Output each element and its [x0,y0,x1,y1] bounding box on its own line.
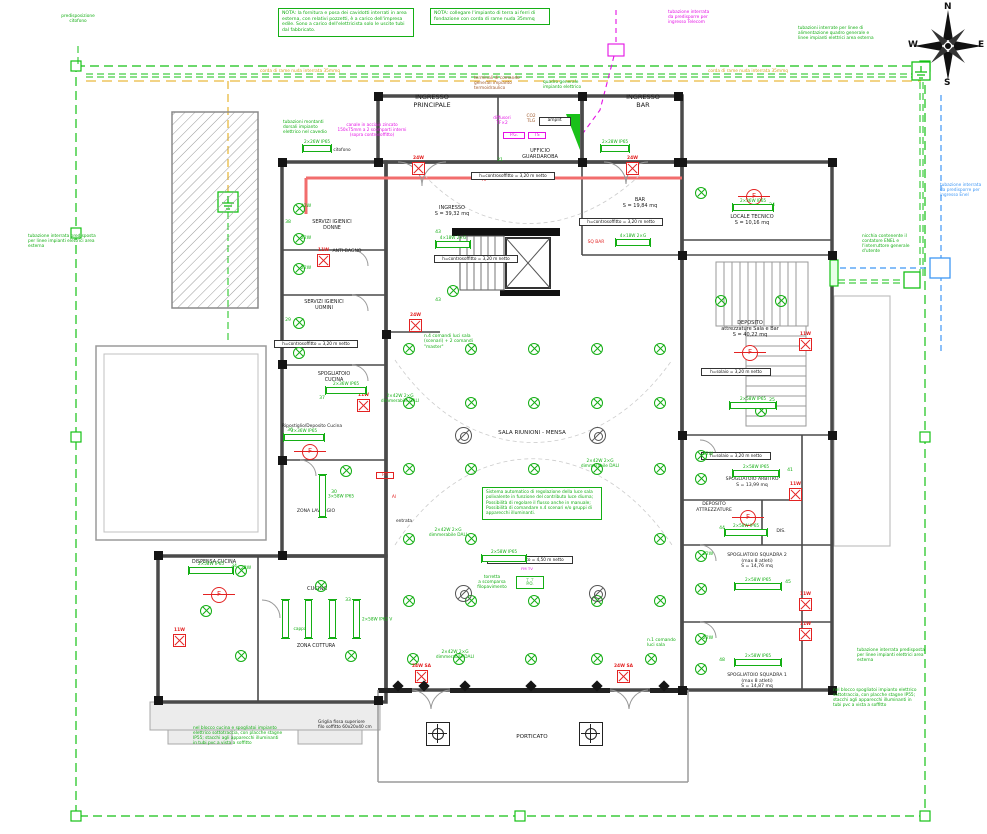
h-ingresso: h=controsoffitto = 3,20 m netto [434,255,518,263]
ceiling-light-icon [340,465,352,477]
note-nicchia: nicchia contenente il contatore ENEL e l… [862,234,918,255]
room-spogliatoio-squadra-1: SPOGLIATOIO SQUADRA 1 (max 8 atleti) S =… [715,673,799,690]
emergency-light-icon: 11W [357,399,370,412]
room-ufficio-guardaroba: UFFICIO GUARDAROBA [510,148,570,160]
fluorescent-lamp-icon: 2×36W IP65 [733,204,773,211]
ceiling-light-icon [235,650,247,662]
emergency-light-label: 11W [318,248,329,253]
emergency-light-label: 11W [790,482,801,487]
label-ts: TS [528,132,546,139]
fluorescent-lamp-icon: 3×58W IP65 [319,475,326,517]
compass-s: S [944,78,950,88]
room-porticato: PORTICATO [502,734,562,741]
label-torretta-box: ⊤ ⊤ P.O. [516,576,544,589]
note-quadro: quadro generale impianto elettrico [543,80,597,90]
ceiling-light-icon [654,533,666,545]
ceiling-light-icon [775,295,787,307]
fluorescent-lamp-icon: 2×58W IP65 [725,529,767,536]
note-griglia: Griglia fissa superiore filo soffitto 60… [318,720,382,730]
label-amplif: amplif. [539,117,571,126]
west-walkway [96,346,266,540]
note-spogliatoi: nel blocco spogliatoi impianto elettrico… [833,688,943,709]
ceiling-light-icon [715,295,727,307]
lamp-label: 2×58W IP65 [740,396,766,401]
h-guardaroba: h=controsoffitto = 3,20 m netto [471,172,555,180]
ceiling-light-icon [465,463,477,475]
ceiling-light-icon [345,650,357,662]
room-locale-tecnico: LOCALE TECNICO S = 10,16 mq [717,214,787,226]
emergency-light-icon: 11W [173,634,186,647]
fluorescent-lamp-icon: 4×18W 2×G [616,239,650,246]
label-corda-left: corda di rame nuda interrata 35mmq [235,69,365,74]
label-fm: FM [376,472,394,479]
room-servizi-uomini: SERVIZI IGIENICI UOMINI [294,300,354,312]
label-dali-3: 2×42W 2×G dimmerabile DALI [373,394,427,404]
emergency-light-icon: 24W SA [617,670,630,683]
note-telecom: tubazione interrata da predisporre per i… [668,10,732,25]
lamp-label: 2×36W IP65 [291,428,317,433]
extractor-fan-icon: F [211,587,227,603]
lamp-label: 2×58W IP65 [733,523,759,528]
label-al-1: Al [388,495,400,500]
fluorescent-lamp-icon: 2×58W IP65 [189,567,233,574]
ceiling-light-icon [403,463,415,475]
floor-box-cross [581,733,600,734]
emergency-light-icon: 11W [799,338,812,351]
lamp-label: 2×26W IP65 [304,139,330,144]
fluorescent-lamp-icon: 2×58W IP65 [735,583,781,590]
room-ingresso-principale: INGRESSO PRINCIPALE [392,94,472,110]
ceiling-light-icon [654,397,666,409]
note-box-regolazione-luce: Sistema automatico di regolazione della … [482,487,602,520]
note-comando-1: n.1 comando luci sala [647,638,691,649]
downlight-icon [455,585,472,602]
room-ingresso-bar: INGRESSO BAR [613,94,673,110]
ceiling-light-icon [695,550,707,562]
emergency-light-label: 24W [627,156,638,161]
ceiling-light-icon [453,653,465,665]
ceiling-light-icon [528,463,540,475]
room-zona-lavaggio: ZONA LAVAGGIO [286,509,346,515]
room-deposito-attrezzature: DEPOSITO ATTREZZATURE [684,502,744,513]
emergency-light-label: 11W [174,628,185,633]
ceiling-light-icon [654,463,666,475]
ceiling-light-icon [403,595,415,607]
fluorescent-lamp-icon: 2×58W IP65 [735,659,781,666]
ceiling-light-icon [695,187,707,199]
lamp-label: 3×58W IP65 [328,494,354,499]
emergency-light-label: 11W [800,622,811,627]
note-comandi-sala: n.4 comandi luci sala (scenari) + 2 coma… [424,334,490,350]
lamp-label: 2×58W IP65 [745,653,771,658]
emergency-light-icon: 24W [412,162,425,175]
ceiling-light-icon [591,343,603,355]
ceiling-light-icon [528,397,540,409]
compass-e: E [978,40,984,50]
downlight-icon [589,585,606,602]
num-43b: 43 [432,298,444,304]
ceiling-light-icon [235,565,247,577]
num-48: 48 [716,658,728,664]
emergency-light-label: 11W [800,332,811,337]
note-enel: tubazione interrata da predisporre per i… [940,183,986,198]
lamp-label: 2×58W IP65 [491,549,517,554]
emergency-light-icon: 24W [409,319,422,332]
floor-box-icon [579,722,603,746]
label-pg: P.G. [503,132,525,139]
room-spogliatoio-arbitro: SPOGLIATOIO ARBITRO S = 13,99 mq [712,477,792,488]
fluorescent-lamp-icon: 2×36W IP65 [326,387,366,394]
extractor-fan-icon: F [742,345,758,361]
note-tubazione-bottom-right: tubazione interrata predisposta per line… [857,648,943,663]
note-predisposizione-citofono: predisposizione citofono [52,14,104,24]
num-41: 41 [784,468,796,474]
fluorescent-lamp-icon: 2×26W IP65 [303,145,331,152]
emergency-light-label: 24W [413,156,424,161]
num-38: 38 [282,220,294,226]
ceiling-light-icon [403,533,415,545]
hatched-canopy [172,112,258,308]
ceiling-light-icon [200,605,212,617]
enel-box [930,258,950,278]
ceiling-light-icon [293,203,305,215]
lamp-label: 4×18W 2×G [620,233,646,238]
fluorescent-lamp-icon: 2×36W IP65 [284,434,324,441]
emergency-light-icon: 11W [799,628,812,641]
note-canale: canale in acciaio zincato 150x75mm a 2 s… [320,122,424,137]
ceiling-light-icon [654,343,666,355]
num-45: 45 [782,580,794,586]
downlight-icon [589,427,606,444]
ceiling-light-icon [293,233,305,245]
label-co2-tlg: CO2 TLG [521,114,541,124]
exterior-walls [158,96,832,702]
emergency-light-label: 24W SA [412,664,431,669]
num-21: 21 [494,158,506,164]
ceiling-light-icon [645,653,657,665]
ceiling-light-icon [293,317,305,329]
ceiling-light-icon [695,450,707,462]
lamp-label: 2×36W IP65 [333,381,359,386]
ceiling-light-icon [525,653,537,665]
fluorescent-lamp-icon: 2×58W IP65 [730,402,776,409]
west-walkway-inner [104,354,258,532]
room-spogliatoio-squadra-2: SPOGLIATOIO SQUADRA 2 (max 8 atleti) S =… [715,553,799,570]
floor-plan-canvas: NOTA: la fornitura e posa dei cavidotti … [0,0,987,834]
compass-n: N [944,2,952,12]
note-torretta: torretta a scomparsa filopavimento [470,575,514,590]
floor-box-icon [426,722,450,746]
fluorescent-lamp-icon: 2×58W IP65 [733,470,779,477]
room-deposito-sala-bar: DEPOSITO attrezzature Sala e Bar S = 40,… [710,320,790,338]
ceiling-light-icon [528,595,540,607]
room-zona-cottura: ZONA COTTURA [286,644,346,650]
room-servizi-donne: SERVIZI IGIENICI DONNE [302,220,362,232]
num-37: 37 [316,396,328,402]
emergency-light-label: 24W [410,313,421,318]
room-sala-riunioni: SALA RIUNIONI - MENSA [477,430,587,437]
label-corda-right: corda di rame nuda interrata 35mmq [683,69,813,74]
compass-w: W [908,40,918,50]
fluorescent-lamp-icon: 2×28W IP65 [601,145,629,152]
note-box-terra: NOTA: collegare l'impianto di terra ai f… [430,8,550,25]
ceiling-light-icon [654,595,666,607]
nicchia-contatore [830,260,838,286]
note-terminali: terminali di comando generali impianto t… [474,76,534,91]
note-alimentazione: tubazioni interrate per linee di aliment… [798,26,904,41]
ceiling-light-icon [528,343,540,355]
room-ingresso: INGRESSO S = 39,32 mq [422,205,482,217]
fluorescent-lamp-icon: 4×18W 2×G [436,241,470,248]
fluorescent-lamp-icon [329,600,336,638]
note-tubazione-left: tubazione interrata predisposta per line… [28,234,114,249]
ceiling-light-icon [591,397,603,409]
fluorescent-lamp-icon: 2×58W IP65 V [353,600,360,638]
ceiling-light-icon [315,580,327,592]
extractor-fan-icon: F [302,444,318,460]
emergency-light-icon: 24W [626,162,639,175]
fluorescent-lamp-icon [305,600,312,638]
h-uomini: h=controsoffitto = 3,20 m netto [274,340,358,348]
ceiling-light-icon [591,463,603,475]
h-bar: h=controsoffitto = 3,20 m netto [579,218,663,226]
ceiling-light-icon [465,397,477,409]
lamp-label: 2×58W IP65 [745,577,771,582]
ceiling-light-icon [695,473,707,485]
downlight-icon [455,427,472,444]
ceiling-light-icon [403,397,415,409]
lamp-label: 2×36W IP65 [740,198,766,203]
label-sq-bar: SQ BAR [581,240,611,245]
room-dis: DIS. [771,529,791,535]
ceiling-light-icon [293,263,305,275]
ceiling-light-icon [695,583,707,595]
emergency-light-label: 11W [800,592,811,597]
ceiling-light-icon [465,343,477,355]
note-cucina: nel blocco cucina e spogliatoi impianto … [193,726,311,747]
ceiling-light-icon [591,653,603,665]
lamp-label: 2×58W IP65 V [362,617,392,622]
label-entrata: entrata [389,519,419,524]
label-fmtv: FM TV [515,567,539,572]
lamp-label: 4×18W 2×G [440,235,466,240]
h-deposito: h=solaio = 3,20 m netto [701,368,771,376]
emergency-light-icon: 11W [317,254,330,267]
lamp-label: 2×58W IP65 [198,561,224,566]
note-box-cavidotti: NOTA: la fornitura e posa dei cavidotti … [278,8,414,37]
room-bar: BAR S = 19,84 mq [610,197,670,209]
floor-box-cross [428,733,447,734]
lamp-label: 2×28W IP65 [602,139,628,144]
lamp-label: 2×58W IP65 [743,464,769,469]
emergency-light-icon: 11W [789,488,802,501]
ceiling-light-icon [695,663,707,675]
label-diffusori: diffusori TF×2 [485,116,519,126]
emergency-light-icon: 11W [799,598,812,611]
telecom-box [608,44,624,56]
ceiling-light-icon [293,347,305,359]
east-terrace [834,296,890,546]
ceiling-light-icon [695,633,707,645]
emergency-light-label: 24W SA [614,664,633,669]
ceiling-light-icon [447,285,459,297]
fluorescent-lamp-icon: 2×58W IP65 [482,555,526,562]
ceiling-light-icon [465,533,477,545]
fluorescent-lamp-icon [282,600,289,638]
ceiling-light-icon [403,343,415,355]
